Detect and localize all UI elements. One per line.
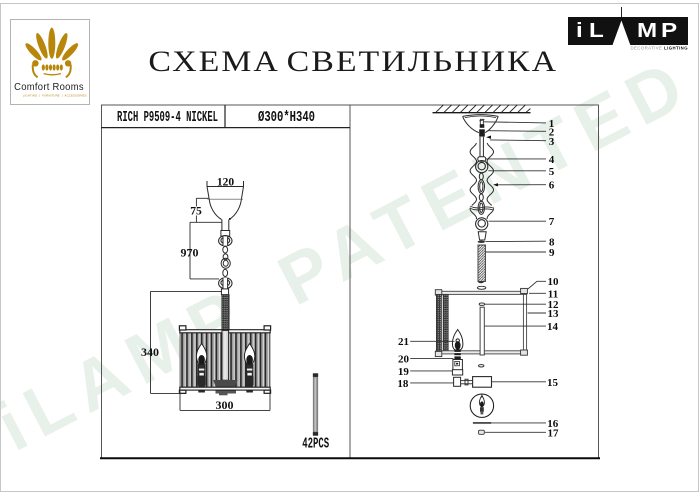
svg-text:42PCS: 42PCS <box>302 436 329 453</box>
svg-text:9: 9 <box>549 247 555 259</box>
svg-text:20: 20 <box>398 353 410 365</box>
svg-text:7: 7 <box>549 216 555 228</box>
svg-text:15: 15 <box>547 377 559 389</box>
svg-text:970: 970 <box>181 245 199 259</box>
svg-text:75: 75 <box>190 206 202 218</box>
svg-text:19: 19 <box>398 366 410 378</box>
svg-text:3: 3 <box>549 136 555 148</box>
svg-text:RICH P9509-4 NICKEL: RICH P9509-4 NICKEL <box>117 109 218 126</box>
svg-text:120: 120 <box>217 177 235 189</box>
svg-text:18: 18 <box>397 378 409 390</box>
svg-text:340: 340 <box>141 345 159 359</box>
svg-text:4: 4 <box>549 154 555 166</box>
svg-text:300: 300 <box>216 398 234 412</box>
svg-text:21: 21 <box>398 336 409 348</box>
svg-text:14: 14 <box>547 321 559 333</box>
svg-text:6: 6 <box>549 180 555 192</box>
svg-text:10: 10 <box>548 276 560 288</box>
svg-text:Ø300*H340: Ø300*H340 <box>258 109 315 126</box>
svg-text:5: 5 <box>549 166 555 178</box>
svg-text:17: 17 <box>548 428 560 440</box>
svg-text:13: 13 <box>548 308 560 320</box>
